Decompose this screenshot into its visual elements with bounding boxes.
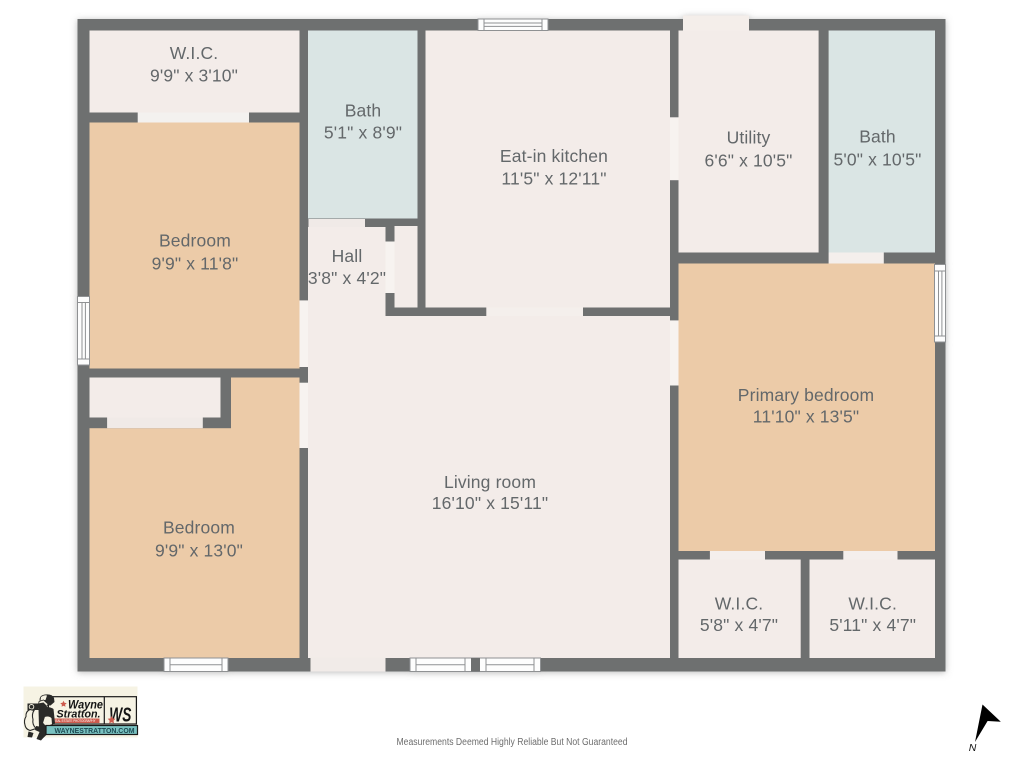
svg-text:Primary bedroom: Primary bedroom [738, 385, 874, 405]
svg-text:9'9" x 11'8": 9'9" x 11'8" [152, 254, 239, 274]
svg-text:6'6" x 10'5": 6'6" x 10'5" [704, 151, 792, 171]
svg-text:5'8" x 4'7": 5'8" x 4'7" [700, 615, 778, 635]
svg-text:5'0" x 10'5": 5'0" x 10'5" [833, 149, 921, 169]
svg-text:REAL ESTATE PHOTOGRAPHY: REAL ESTATE PHOTOGRAPHY [54, 719, 97, 723]
svg-text:Measurements Deemed Highly Rel: Measurements Deemed Highly Reliable But … [397, 737, 628, 748]
svg-text:WAYNESTRATTON.COM: WAYNESTRATTON.COM [55, 726, 135, 735]
svg-text:9'9" x 13'0": 9'9" x 13'0" [155, 541, 243, 561]
svg-text:Bath: Bath [345, 101, 382, 121]
svg-text:Hall: Hall [332, 246, 363, 266]
svg-text:W.I.C.: W.I.C. [848, 594, 897, 614]
svg-text:W.I.C.: W.I.C. [170, 43, 219, 63]
svg-text:Bedroom: Bedroom [163, 518, 235, 538]
svg-text:WS: WS [109, 705, 131, 727]
svg-text:W.I.C.: W.I.C. [715, 594, 764, 614]
svg-text:5'1" x 8'9": 5'1" x 8'9" [324, 123, 402, 143]
svg-text:Eat-in kitchen: Eat-in kitchen [500, 146, 608, 166]
svg-text:16'10" x 15'11": 16'10" x 15'11" [432, 493, 548, 513]
svg-text:11'10" x 13'5": 11'10" x 13'5" [753, 407, 860, 427]
svg-text:3'8" x 4'2": 3'8" x 4'2" [308, 268, 386, 288]
svg-text:5'11" x 4'7": 5'11" x 4'7" [829, 615, 916, 635]
svg-text:Utility: Utility [727, 127, 771, 147]
svg-text:9'9" x 3'10": 9'9" x 3'10" [150, 66, 238, 86]
svg-text:Living room: Living room [444, 472, 536, 492]
svg-text:N: N [969, 742, 977, 754]
svg-text:Bedroom: Bedroom [159, 231, 231, 251]
svg-text:Bath: Bath [859, 127, 896, 147]
svg-text:11'5" x 12'11": 11'5" x 12'11" [501, 169, 606, 189]
